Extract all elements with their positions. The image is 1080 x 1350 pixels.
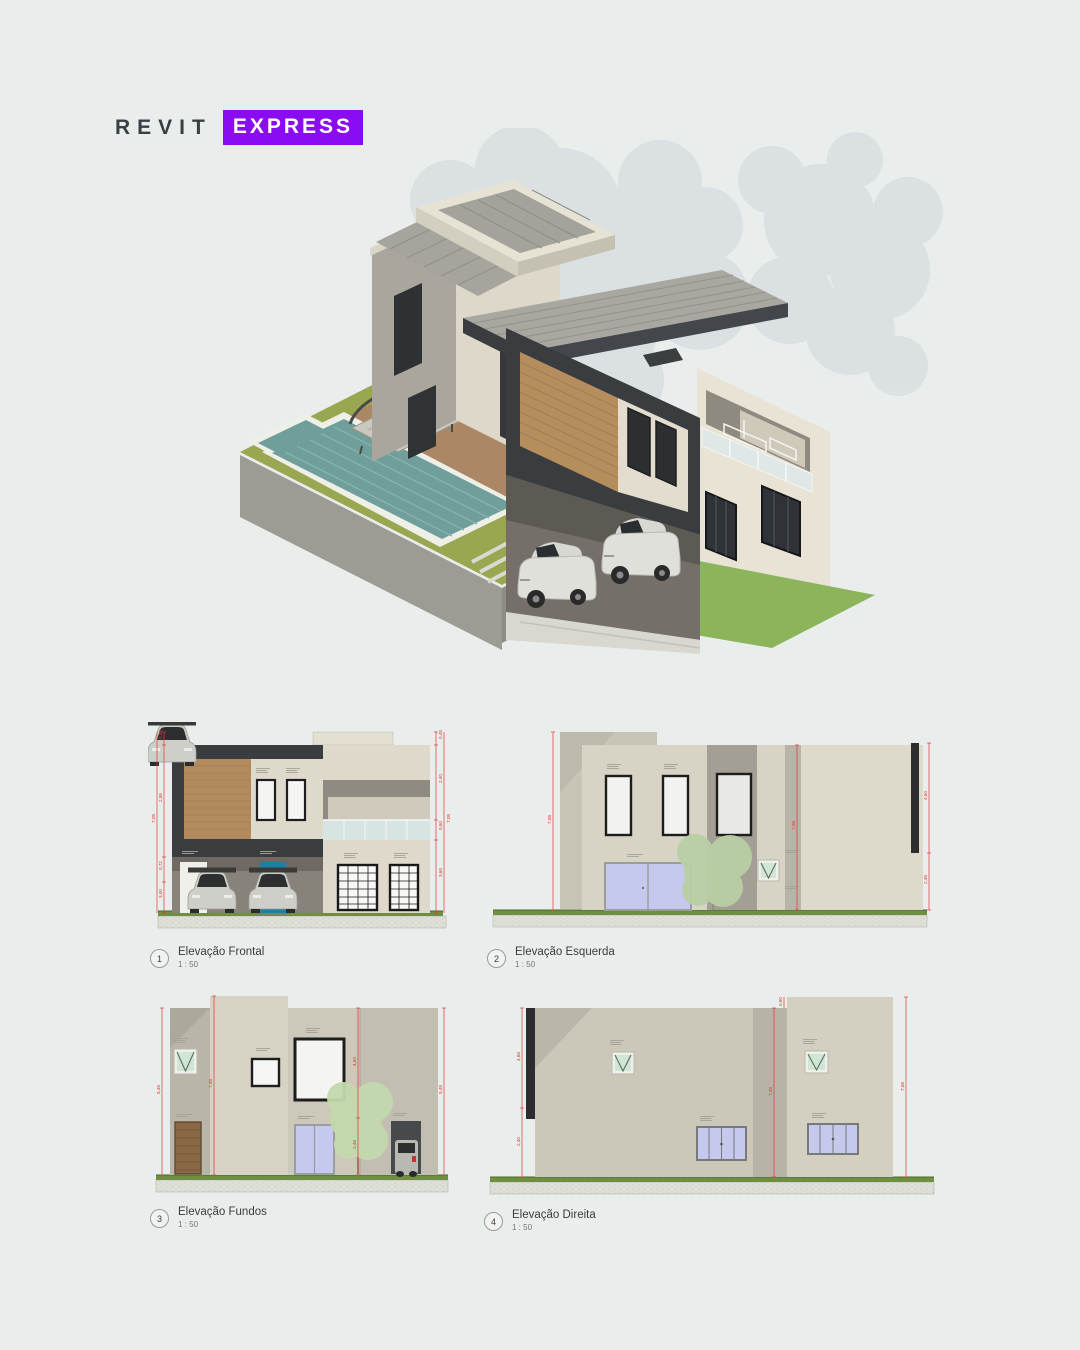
svg-text:2,40: 2,40 <box>438 774 443 783</box>
view-number-badge: 1 <box>150 949 169 968</box>
upper-window <box>656 421 676 486</box>
ground <box>158 911 446 928</box>
view-frontal: 0,48 2,88 0,72 3,00 7,08 0,48 2,40 0,60 … <box>148 722 458 969</box>
sliding-glass-door <box>605 863 691 910</box>
view-scale: 1 : 50 <box>178 960 264 969</box>
ground <box>156 1175 448 1192</box>
dark-edge-band <box>911 743 919 853</box>
view-scale: 1 : 50 <box>512 1223 596 1232</box>
elevation-frontal-drawing: 0,48 2,88 0,72 3,00 7,08 0,48 2,40 0,60 … <box>148 722 458 937</box>
view-title: Elevação Frontal <box>178 946 264 958</box>
svg-text:3,60: 3,60 <box>438 868 443 877</box>
view-scale: 1 : 50 <box>515 960 615 969</box>
left-wing-window <box>394 283 422 376</box>
elevation-direita-drawing: 4,68 2,40 7,08 7,68 0,60 <box>482 988 942 1200</box>
house-3d-render <box>170 128 960 668</box>
view-title: Elevação Esquerda <box>515 946 615 958</box>
poster: REVIT EXPRESS <box>0 0 1080 1350</box>
parapet <box>313 732 393 745</box>
wood-door <box>175 1122 201 1174</box>
view-direita: 4,68 2,40 7,08 7,68 0,60 4 Elevação Dire… <box>482 988 942 1232</box>
view-title: Elevação Direita <box>512 1209 596 1221</box>
left-wing-door <box>408 385 436 459</box>
svg-text:3,00: 3,00 <box>158 889 163 898</box>
view-number-badge: 2 <box>487 949 506 968</box>
car-front <box>148 723 196 766</box>
view-caption: 1 Elevação Frontal 1 : 50 <box>150 946 458 969</box>
svg-text:2,88: 2,88 <box>158 793 163 802</box>
svg-text:5,48: 5,48 <box>156 1085 161 1094</box>
lower-grid-windows <box>338 865 418 910</box>
small-green-window <box>758 860 779 881</box>
view-esquerda: 7,08 7,08 4,60 2,48 2 Elevação Esquerda … <box>485 722 935 969</box>
svg-text:7,08: 7,08 <box>791 821 796 830</box>
dark-edge-band <box>526 1008 535 1119</box>
svg-text:0,72: 0,72 <box>158 861 163 870</box>
small-window <box>252 1059 279 1086</box>
svg-text:7,68: 7,68 <box>900 1082 905 1091</box>
view-caption: 3 Elevação Fundos 1 : 50 <box>150 1206 458 1229</box>
upper-window <box>628 408 650 476</box>
svg-text:2,48: 2,48 <box>352 1140 357 1149</box>
svg-text:7,08: 7,08 <box>151 814 156 823</box>
wood-panel <box>184 759 251 839</box>
house-3d-render-svg <box>170 128 960 668</box>
upper-windows <box>606 774 751 835</box>
view-number-badge: 3 <box>150 1209 169 1228</box>
svg-text:2,40: 2,40 <box>516 1137 521 1146</box>
svg-text:0,60: 0,60 <box>778 997 783 1006</box>
svg-text:7,08: 7,08 <box>768 1087 773 1096</box>
svg-text:0,60: 0,60 <box>438 821 443 830</box>
svg-text:7,08: 7,08 <box>208 1079 213 1088</box>
elevation-fundos-drawing: 5,48 7,08 4,60 2,48 5,48 <box>148 990 458 1197</box>
balcony-recess <box>323 780 430 840</box>
glass-railing <box>323 820 430 840</box>
svg-text:0,48: 0,48 <box>158 730 163 739</box>
view-title: Elevação Fundos <box>178 1206 267 1218</box>
svg-text:4,60: 4,60 <box>352 1057 357 1066</box>
svg-text:7,08: 7,08 <box>446 814 451 823</box>
ground <box>493 910 927 927</box>
view-fundos: 5,48 7,08 4,60 2,48 5,48 3 Elevação Fund… <box>148 990 458 1229</box>
sliding-glass-door <box>295 1125 334 1174</box>
view-number-badge: 4 <box>484 1212 503 1231</box>
svg-text:2,48: 2,48 <box>923 875 928 884</box>
view-scale: 1 : 50 <box>178 1220 267 1229</box>
elevation-esquerda-drawing: 7,08 7,08 4,60 2,48 <box>485 722 935 937</box>
view-caption: 4 Elevação Direita 1 : 50 <box>484 1209 942 1232</box>
svg-text:7,08: 7,08 <box>547 815 552 824</box>
small-green-window <box>174 1049 197 1074</box>
view-caption: 2 Elevação Esquerda 1 : 50 <box>487 946 935 969</box>
svg-text:5,48: 5,48 <box>438 1085 443 1094</box>
car-opening <box>391 1121 421 1177</box>
svg-text:4,60: 4,60 <box>923 791 928 800</box>
svg-text:0,48: 0,48 <box>438 730 443 739</box>
svg-text:4,68: 4,68 <box>516 1052 521 1061</box>
